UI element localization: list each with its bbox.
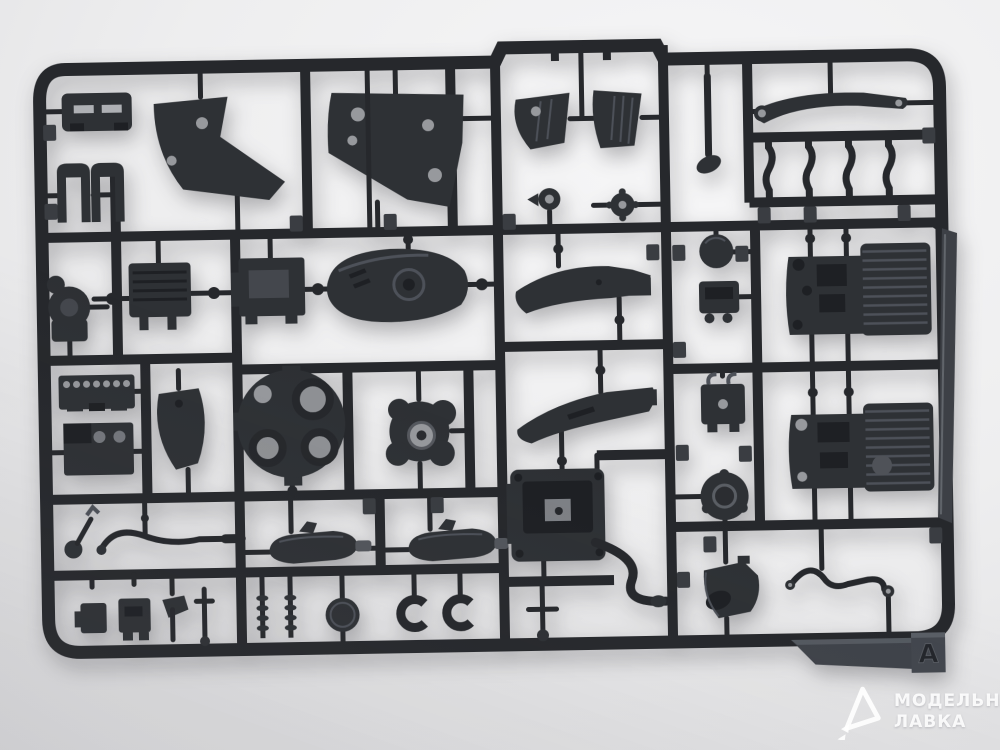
part-cylinder-head-lower [788, 402, 935, 493]
part-round-cap [699, 234, 734, 269]
part-front-fender-half-right [515, 265, 651, 314]
part-headlight-eyelet [527, 188, 560, 211]
sprue-frame-group: MENG A [0, 40, 965, 706]
part-side-panel [157, 388, 206, 470]
part-rack-plate [61, 92, 132, 131]
part-muffler-left [269, 520, 372, 564]
part-thin-rod [367, 68, 370, 228]
part-linkage-set [765, 135, 893, 202]
part-crankcase-cover [232, 365, 346, 487]
part-spring-links [256, 590, 297, 639]
part-battery-bracket [230, 257, 305, 324]
part-distributor-cover [700, 469, 749, 521]
watermark-line1: МОДЕЛЬНАЯ [894, 691, 1000, 712]
part-pump-housing [47, 275, 91, 342]
part-small-bracket-cluster [74, 589, 213, 648]
sprue-photo: MENG A [0, 0, 1000, 750]
part-stub-box [63, 422, 134, 475]
watermark-logo-icon [833, 684, 885, 740]
part-valve-lever [528, 595, 557, 641]
part-shift-lever [64, 507, 100, 559]
part-intake-scoop-right [592, 89, 642, 148]
part-disc [325, 597, 360, 632]
part-handlebar [96, 531, 241, 556]
part-frame-plate-right [327, 91, 466, 209]
sprue-letter-text: A [918, 639, 939, 669]
part-engine-case [506, 467, 666, 610]
part-holes-plate [58, 374, 135, 411]
watermark-line2: ЛАВКА [894, 712, 1000, 733]
part-gearbox-cover [385, 398, 457, 467]
part-front-fender-half-left [516, 387, 657, 443]
gate-beads [105, 227, 856, 523]
part-mount-bracket [700, 374, 745, 433]
part-cylinder-head-upper [785, 242, 932, 337]
part-intake-cup [702, 556, 759, 619]
part-muffler-right [408, 518, 509, 562]
part-s-rod [785, 569, 894, 599]
photo-backdrop: MENG A МОДЕЛЬНАЯ ЛАВКА [0, 0, 1000, 750]
part-swing-arm [754, 91, 908, 123]
part-fuel-tank [326, 248, 468, 324]
part-c-clamps [401, 599, 471, 628]
part-frame-plate-left [154, 96, 286, 202]
part-intake-scoop-left [514, 93, 570, 150]
part-carb-body [699, 281, 740, 324]
part-sprocket-small [606, 188, 640, 222]
part-finned-box [128, 262, 191, 330]
part-kickstand-lever [692, 76, 724, 177]
watermark: МОДЕЛЬНАЯ ЛАВКА [833, 684, 1000, 740]
